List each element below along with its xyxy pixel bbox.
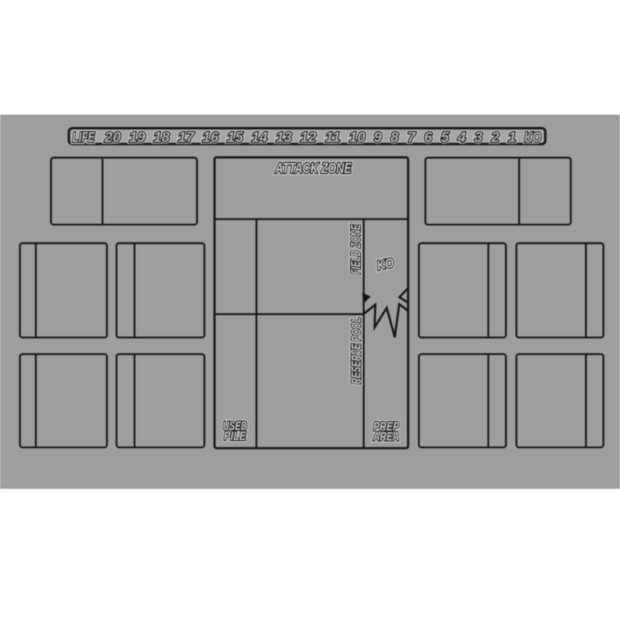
svg-text:ATTACK ZONE: ATTACK ZONE [275,161,353,177]
svg-text:FIELD ZONE: FIELD ZONE [348,224,363,274]
svg-text:PILE: PILE [224,431,246,443]
svg-text:RESERVE POOL: RESERVE POOL [349,317,364,384]
svg-text:AREA: AREA [372,432,399,444]
svg-text:LIFE: LIFE [72,130,95,146]
